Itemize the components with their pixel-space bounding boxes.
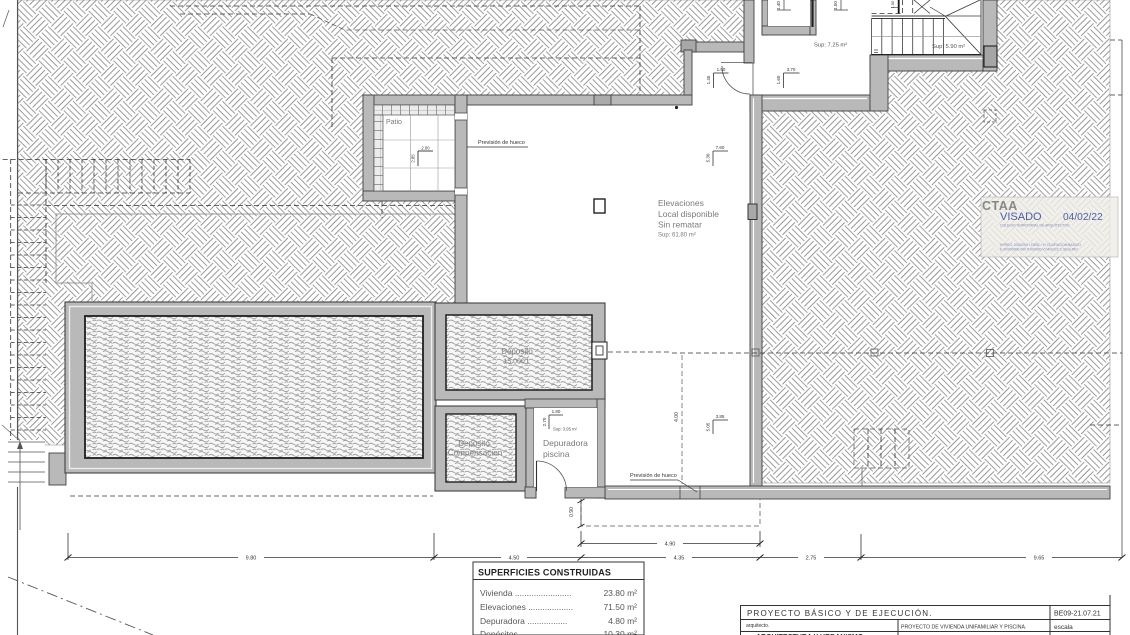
svg-text:71.50 m²: 71.50 m² — [603, 602, 637, 612]
svg-text:COLEGIO TERRITORIAL DE ARQUITE: COLEGIO TERRITORIAL DE ARQUITECTOS — [1000, 224, 1070, 228]
svg-text:Sup: 3.95 m²: Sup: 3.95 m² — [553, 427, 578, 432]
svg-text:1.45: 1.45 — [706, 75, 711, 84]
svg-text:04/02/22: 04/02/22 — [1063, 212, 1103, 223]
svg-text:VISADO: VISADO — [1000, 211, 1042, 223]
svg-text:23.80 m²: 23.80 m² — [603, 588, 637, 598]
svg-text:E:00/000000-000 P:000000 V:04/: E:00/000000-000 P:000000 V:04/02/22 C.SE… — [1000, 248, 1078, 252]
svg-text:10.30 m²: 10.30 m² — [603, 629, 637, 635]
svg-text:PROYECTO DE VIVIENDA UNIFAMILI: PROYECTO DE VIVIENDA UNIFAMILIAR Y PISCI… — [901, 625, 1026, 631]
svg-text:Depuradora: Depuradora — [543, 438, 588, 448]
svg-text:1.60: 1.60 — [776, 75, 781, 84]
svg-text:Deposito: Deposito — [501, 347, 533, 356]
svg-text:4.35: 4.35 — [674, 556, 685, 562]
svg-text:0.90: 0.90 — [569, 507, 575, 517]
svg-text:15.000 L: 15.000 L — [503, 359, 530, 366]
svg-text:Sup: 61.80 m²: Sup: 61.80 m² — [658, 233, 696, 239]
svg-text:Previsión de hueco: Previsión de hueco — [630, 473, 677, 479]
svg-text:9.65: 9.65 — [1034, 556, 1045, 562]
svg-text:1.50: 1.50 — [833, 1, 838, 10]
svg-text:Vivienda .....................: Vivienda ........................ — [480, 588, 572, 598]
svg-text:2.00: 2.00 — [421, 146, 430, 151]
svg-text:Nº/REG: 2022/000 • FASE • 1ª O: Nº/REG: 2022/000 • FASE • 1ª OCUPACION:B… — [1000, 243, 1081, 247]
svg-text:2.70: 2.70 — [542, 417, 547, 426]
svg-text:3.85: 3.85 — [716, 414, 725, 419]
svg-text:4.80 m²: 4.80 m² — [608, 616, 637, 626]
svg-text:Elevaciones ..................: Elevaciones ................... — [480, 602, 573, 612]
svg-text:Patio: Patio — [386, 119, 402, 126]
svg-text:7.60: 7.60 — [716, 145, 725, 150]
svg-text:piscina: piscina — [543, 449, 570, 459]
svg-text:Previsión de hueco: Previsión de hueco — [478, 140, 525, 146]
svg-text:5.05: 5.05 — [706, 422, 711, 431]
svg-text:Deposito: Deposito — [458, 439, 490, 448]
svg-text:1.40: 1.40 — [776, 1, 781, 10]
svg-text:Local disponible: Local disponible — [658, 209, 719, 219]
svg-text:4.00: 4.00 — [674, 412, 680, 422]
svg-text:Sup: 5.90 m²: Sup: 5.90 m² — [932, 44, 965, 50]
svg-text:Sup: 7.25 m²: Sup: 7.25 m² — [814, 43, 847, 49]
svg-text:Sin rematar: Sin rematar — [658, 220, 702, 230]
svg-text:arquitecto.: arquitecto. — [746, 623, 769, 629]
svg-text:1.80: 1.80 — [552, 409, 561, 414]
svg-text:Compensacion: Compensacion — [448, 449, 503, 458]
svg-text:1.50: 1.50 — [891, 1, 895, 8]
svg-text:Depuradora .................: Depuradora ................. — [480, 616, 567, 626]
svg-text:4.50: 4.50 — [509, 556, 520, 562]
svg-text:escala: escala — [1054, 624, 1073, 631]
svg-text:2.85: 2.85 — [411, 154, 416, 163]
svg-text:Depósitos ....................: Depósitos .................... — [480, 629, 567, 635]
svg-text:Elevaciones: Elevaciones — [658, 198, 704, 208]
svg-text:9.80: 9.80 — [246, 556, 257, 562]
svg-text:1.50: 1.50 — [717, 67, 726, 72]
svg-text:BE09-21.07.21: BE09-21.07.21 — [1054, 611, 1101, 618]
svg-text:PROYECTO BÁSICO Y DE EJECU: PROYECTO BÁSICO Y DE EJECUCIÓN. — [747, 609, 933, 618]
svg-text:3.70: 3.70 — [787, 67, 796, 72]
svg-text:5.30: 5.30 — [706, 153, 711, 162]
svg-text:SUPERFICIES CONSTRUIDAS: SUPERFICIES CONSTRUIDAS — [478, 568, 611, 578]
svg-text:2.75: 2.75 — [806, 556, 817, 562]
svg-text:4.90: 4.90 — [665, 542, 676, 548]
